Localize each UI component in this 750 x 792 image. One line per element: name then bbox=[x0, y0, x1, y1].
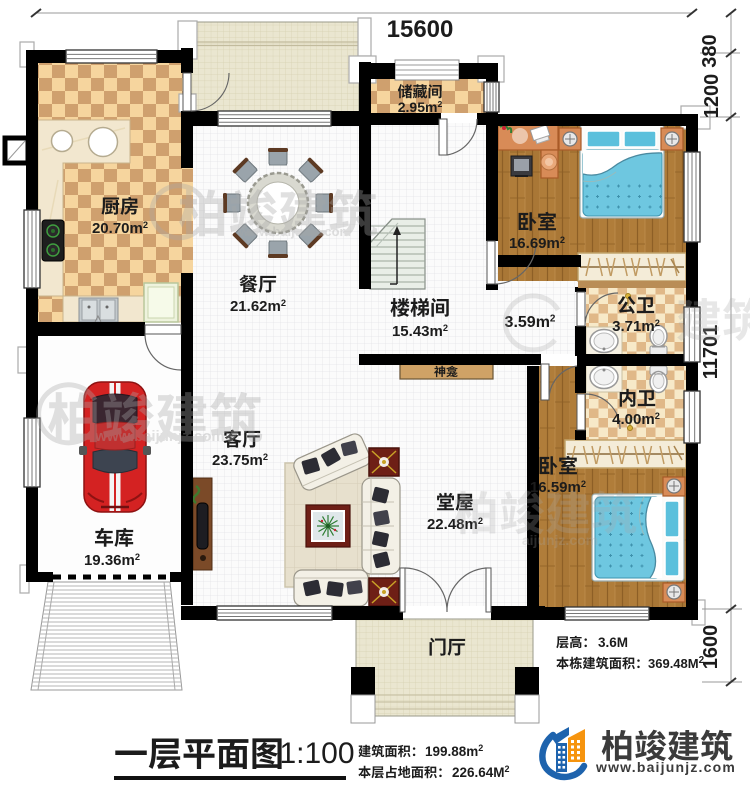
svg-text:3.59m2: 3.59m2 bbox=[505, 313, 556, 331]
svg-text:3.71m2: 3.71m2 bbox=[612, 318, 660, 335]
svg-text:19.36m2: 19.36m2 bbox=[84, 552, 140, 569]
svg-text:2.95m2: 2.95m2 bbox=[398, 99, 443, 115]
svg-text:www.baijunjz.com: www.baijunjz.com bbox=[595, 759, 736, 775]
svg-text:23.75m2: 23.75m2 bbox=[212, 452, 268, 469]
svg-text:15600: 15600 bbox=[387, 16, 454, 43]
svg-text:www.baijunjz.com: www.baijunjz.com bbox=[238, 224, 351, 239]
svg-text:16.69m2: 16.69m2 bbox=[509, 235, 565, 252]
svg-text:15.43m2: 15.43m2 bbox=[392, 323, 448, 340]
svg-text:20.70m2: 20.70m2 bbox=[92, 220, 148, 237]
svg-text:199.88m2: 199.88m2 bbox=[425, 743, 483, 759]
svg-text:1:100: 1:100 bbox=[279, 737, 354, 770]
svg-text:21.62m2: 21.62m2 bbox=[230, 298, 286, 315]
svg-text:aijunjz.com: aijunjz.com bbox=[522, 532, 598, 548]
svg-text:3.6M: 3.6M bbox=[598, 635, 628, 650]
svg-text:www.baijunjz.com: www.baijunjz.com bbox=[94, 428, 224, 445]
svg-text:380: 380 bbox=[699, 34, 721, 67]
svg-text:226.64M2: 226.64M2 bbox=[452, 764, 510, 780]
svg-text:4.00m2: 4.00m2 bbox=[612, 411, 660, 428]
svg-text:1200: 1200 bbox=[701, 74, 723, 119]
svg-text:369.48M2: 369.48M2 bbox=[648, 655, 705, 671]
